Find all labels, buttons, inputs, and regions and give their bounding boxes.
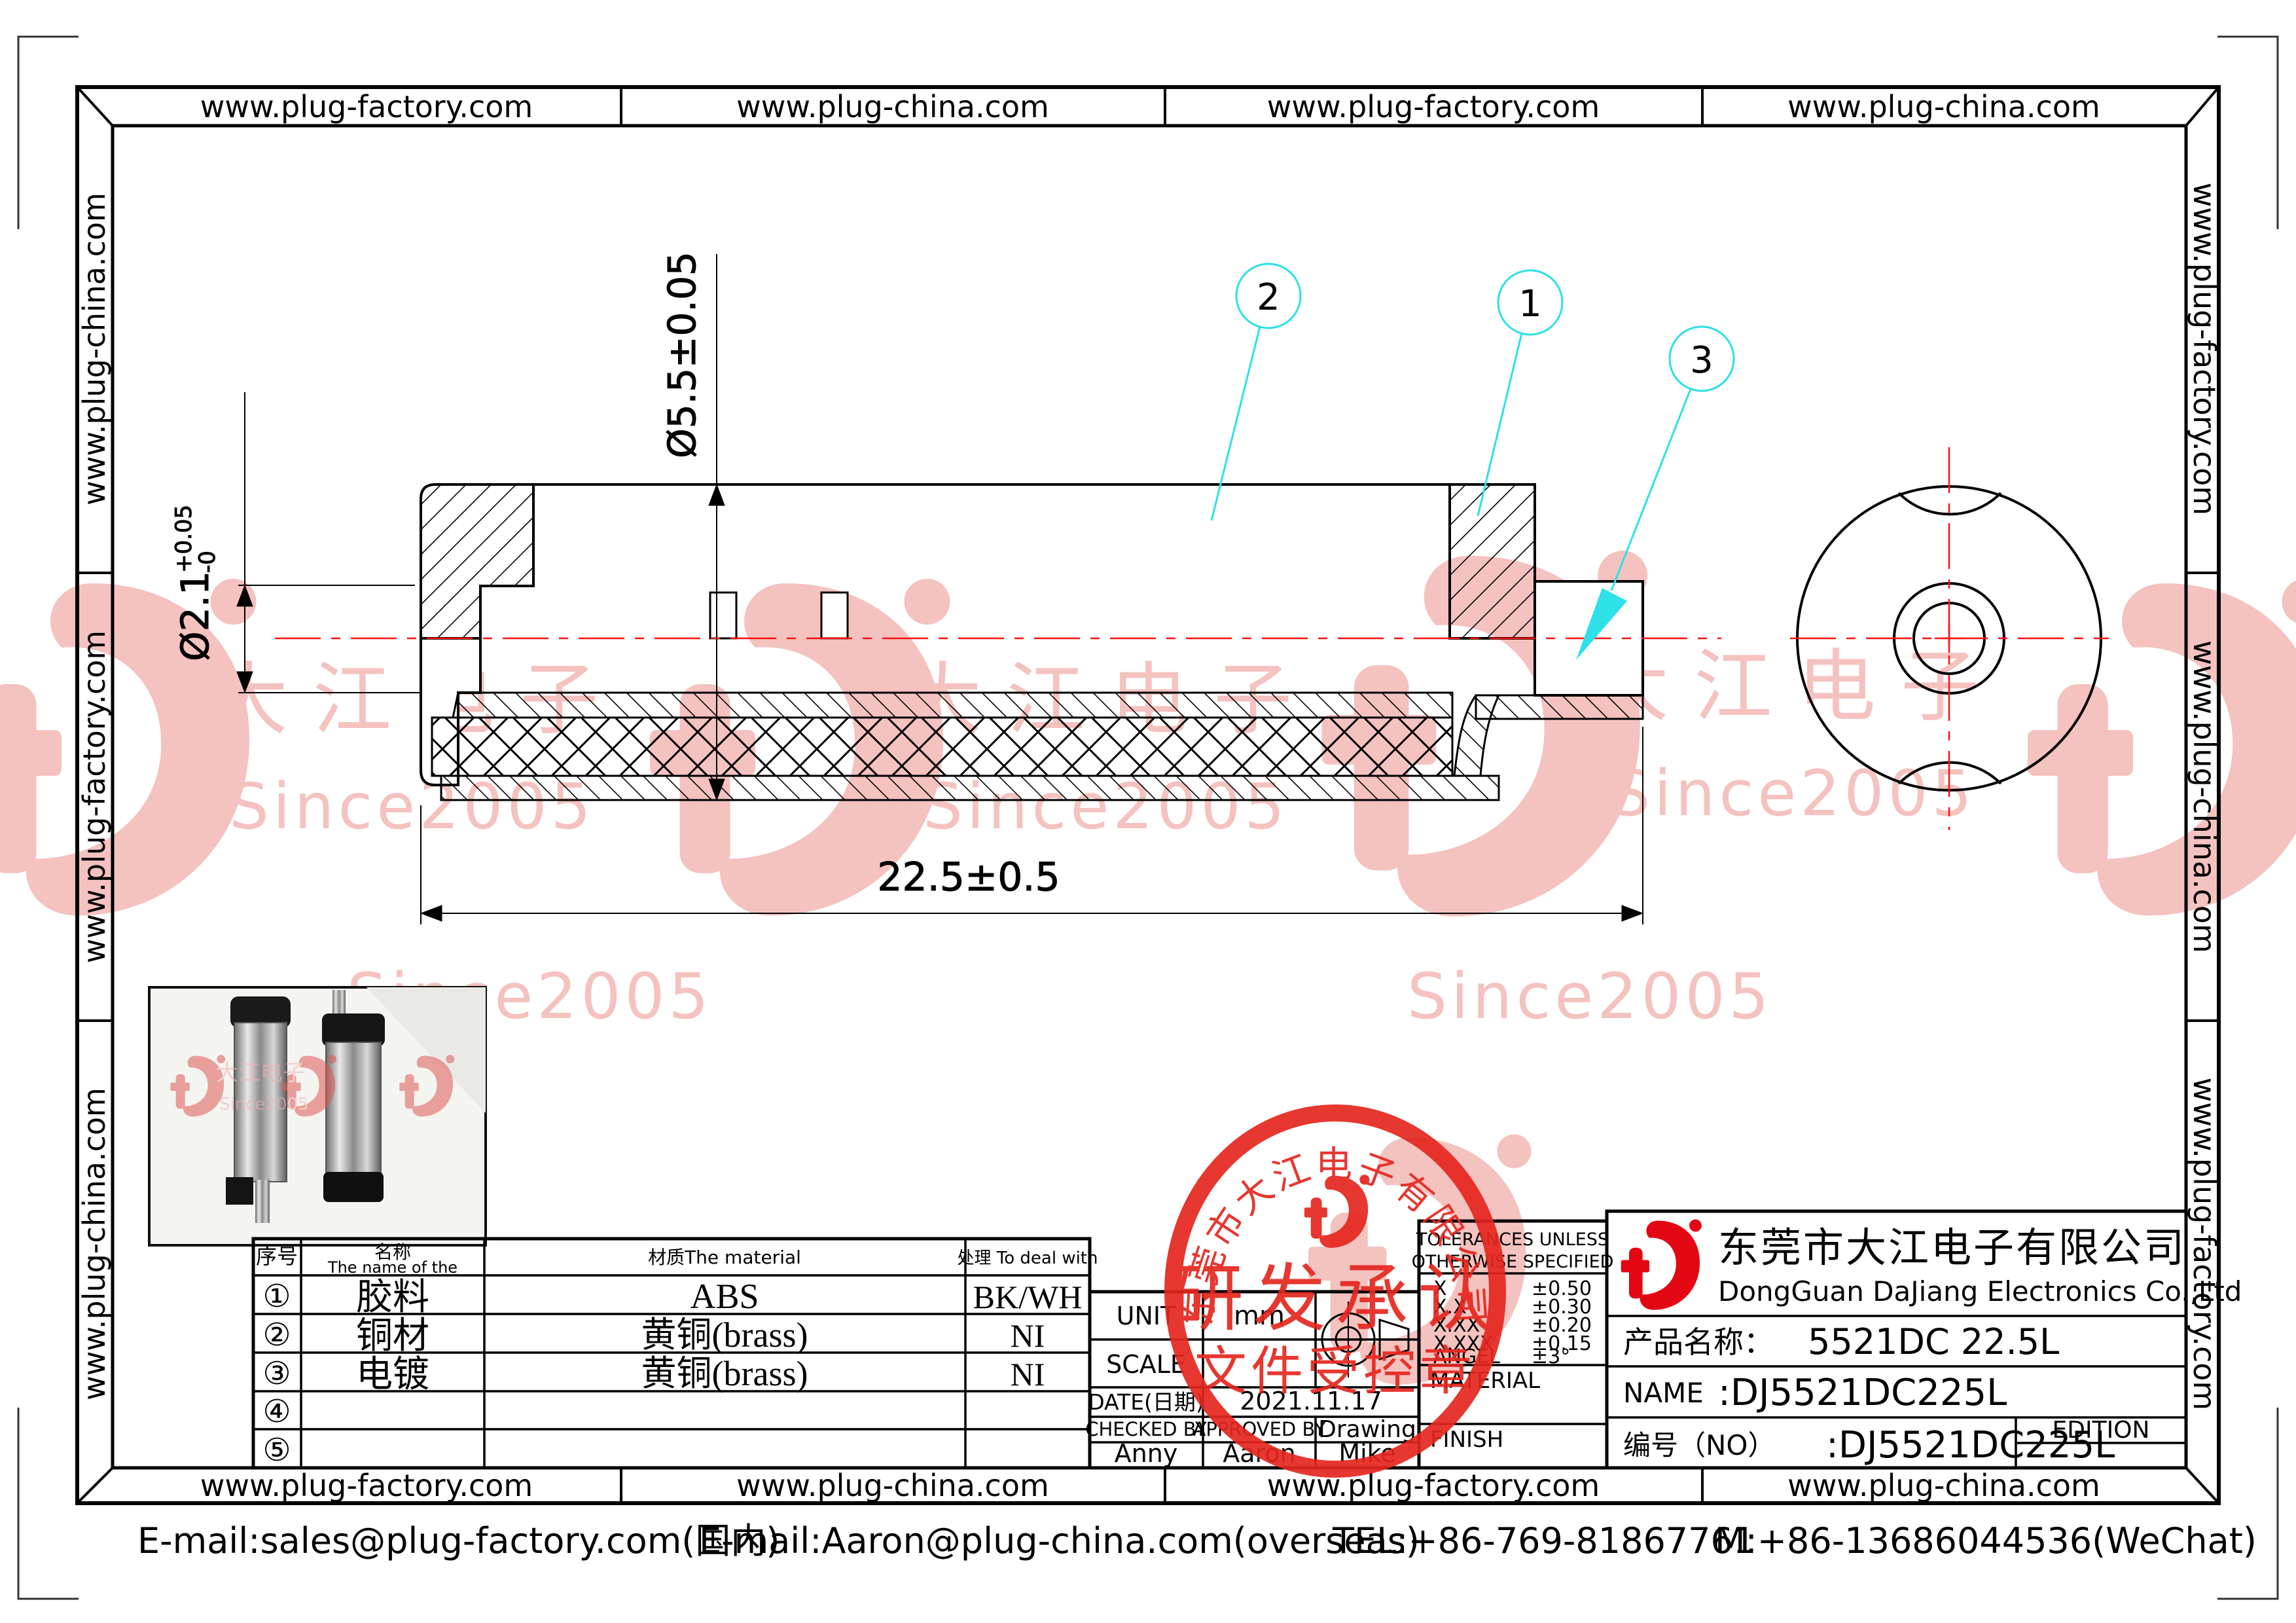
part-row-material: 黄铜(brass) — [641, 1315, 808, 1355]
callout-number-3: 3 — [1690, 339, 1713, 382]
checked-by-name: Anny — [1115, 1439, 1178, 1468]
watermark-logo — [0, 579, 257, 916]
side-section-view — [421, 484, 1643, 800]
approved-by-label: APPROVED BY — [1193, 1418, 1325, 1440]
name-label: NAME — [1623, 1377, 1704, 1409]
col-header-name-en: The name of the — [327, 1258, 457, 1277]
border-url: www.plug-factory.com — [1267, 89, 1600, 124]
part-row-treat: NI — [1011, 1356, 1045, 1393]
edition-label: EDITION — [2053, 1417, 2150, 1444]
part-row-no: ② — [262, 1317, 291, 1353]
border-url: www.plug-factory.com — [77, 630, 112, 964]
dim-bore-value: Ø2.1 — [173, 571, 217, 661]
watermark-brand: 大江电子 — [2258, 655, 2296, 746]
border-url: www.plug-china.com — [2187, 640, 2222, 953]
name-value: :DJ5521DC225L — [1718, 1372, 2007, 1414]
title-block-content: 东莞市大江电子有限公司 DongGuan DaJiang Electronics… — [1621, 1220, 2242, 1467]
dim-length-text: 22.5±0.5 — [877, 854, 1060, 900]
watermark-logo — [2028, 579, 2296, 916]
footer-tel: TEL:+86-769-81867761 — [1332, 1520, 1755, 1561]
footer-contacts: E-mail:sales@plug-factory.com(国内) E-mail… — [137, 1520, 2257, 1561]
border-url: www.plug-factory.com — [2187, 1078, 2222, 1411]
sleeve-transition — [1454, 695, 1499, 776]
product-photo: 大江电子 Since2005 — [149, 987, 486, 1245]
footer-email-domestic: E-mail:sales@plug-factory.com(国内) — [137, 1520, 780, 1561]
footer-mobile: M:+86-13686044536(WeChat) — [1715, 1520, 2257, 1561]
part-row-no: ③ — [262, 1355, 291, 1392]
barrel-top-band — [453, 693, 1452, 718]
part-row-treat: NI — [1011, 1317, 1045, 1354]
border-url: www.plug-china.com — [77, 1087, 112, 1400]
part-row-material: 黄铜(brass) — [641, 1354, 808, 1393]
inner-contact — [710, 593, 736, 638]
border-url: www.plug-factory.com — [200, 89, 533, 124]
dim-outer-dia-text: Ø5.5±0.05 — [660, 251, 704, 458]
border-url: www.plug-factory.com — [2187, 183, 2222, 516]
col-header-material: 材质The material — [648, 1247, 801, 1268]
border-url: www.plug-china.com — [1787, 1468, 2100, 1503]
callout-number-2: 2 — [1257, 276, 1280, 319]
barrel-bottom-band — [441, 776, 1499, 800]
plastic-cap-section — [421, 484, 533, 638]
border-url: www.plug-china.com — [1787, 89, 2100, 124]
company-name-en: DongGuan DaJiang Electronics Co.,Ltd — [1718, 1275, 2242, 1307]
photo-watermark-brand: 大江电子 — [216, 1060, 305, 1086]
part-row-no: ④ — [262, 1393, 291, 1430]
company-name-cn: 东莞市大江电子有限公司 — [1718, 1224, 2186, 1271]
company-logo — [1621, 1220, 1702, 1310]
footer-email-overseas: E-mail:Aaron@plug-china.com(overseas) — [699, 1520, 1420, 1561]
scale-label: SCALE — [1106, 1350, 1186, 1379]
col-header-treat: 处理 To deal with — [958, 1249, 1098, 1268]
callout-number-1: 1 — [1518, 283, 1542, 325]
col-header-no: 序号 — [256, 1244, 298, 1269]
stamp-line2: 文件受控章 — [1194, 1341, 1476, 1402]
photo-watermark-since: Since2005 — [219, 1095, 309, 1114]
date-label: DATE(日期) — [1088, 1389, 1204, 1415]
product-label: 产品名称： — [1623, 1324, 1774, 1360]
part-row-treat: BK/WH — [973, 1279, 1083, 1315]
border-url: www.plug-china.com — [736, 1468, 1049, 1503]
tol-value: ±3° — [1532, 1345, 1570, 1368]
product-value: 5521DC 22.5L — [1808, 1321, 2059, 1362]
border-url: www.plug-china.com — [77, 192, 112, 505]
part-row-name: 电镀 — [356, 1353, 429, 1396]
inner-contact — [821, 593, 848, 638]
checked-by-label: CHECKED BY — [1085, 1418, 1207, 1440]
stamp-line1: 研发承认 — [1170, 1256, 1500, 1341]
dim-bore-tol-minus: -0 — [194, 551, 221, 573]
drawing-canvas: 大江电子 大江电子 大江电子 大江电子 Since2005 Since2005 … — [0, 0, 2296, 1623]
brass-ring-section — [1450, 484, 1535, 638]
no-label: 编号（NO） — [1623, 1429, 1775, 1461]
border-url: www.plug-china.com — [736, 89, 1049, 124]
dim-bore-tol-plus: +0.05 — [171, 505, 197, 573]
sleeve-band — [1476, 695, 1643, 719]
part-row-name: 铜材 — [356, 1315, 429, 1357]
border-url: www.plug-factory.com — [200, 1468, 533, 1503]
watermark-since: Since2005 — [1407, 960, 1773, 1033]
part-row-no: ① — [262, 1278, 291, 1315]
dim-bore-text: Ø2.1 +0.05 -0 — [171, 505, 221, 661]
part-row-material: ABS — [690, 1277, 759, 1316]
part-row-name: 胶料 — [356, 1276, 429, 1319]
knurled-barrel — [432, 718, 1452, 776]
drawing-sheet: 大江电子 大江电子 大江电子 大江电子 Since2005 Since2005 … — [0, 0, 2296, 1623]
part-row-no: ⑤ — [262, 1432, 291, 1468]
